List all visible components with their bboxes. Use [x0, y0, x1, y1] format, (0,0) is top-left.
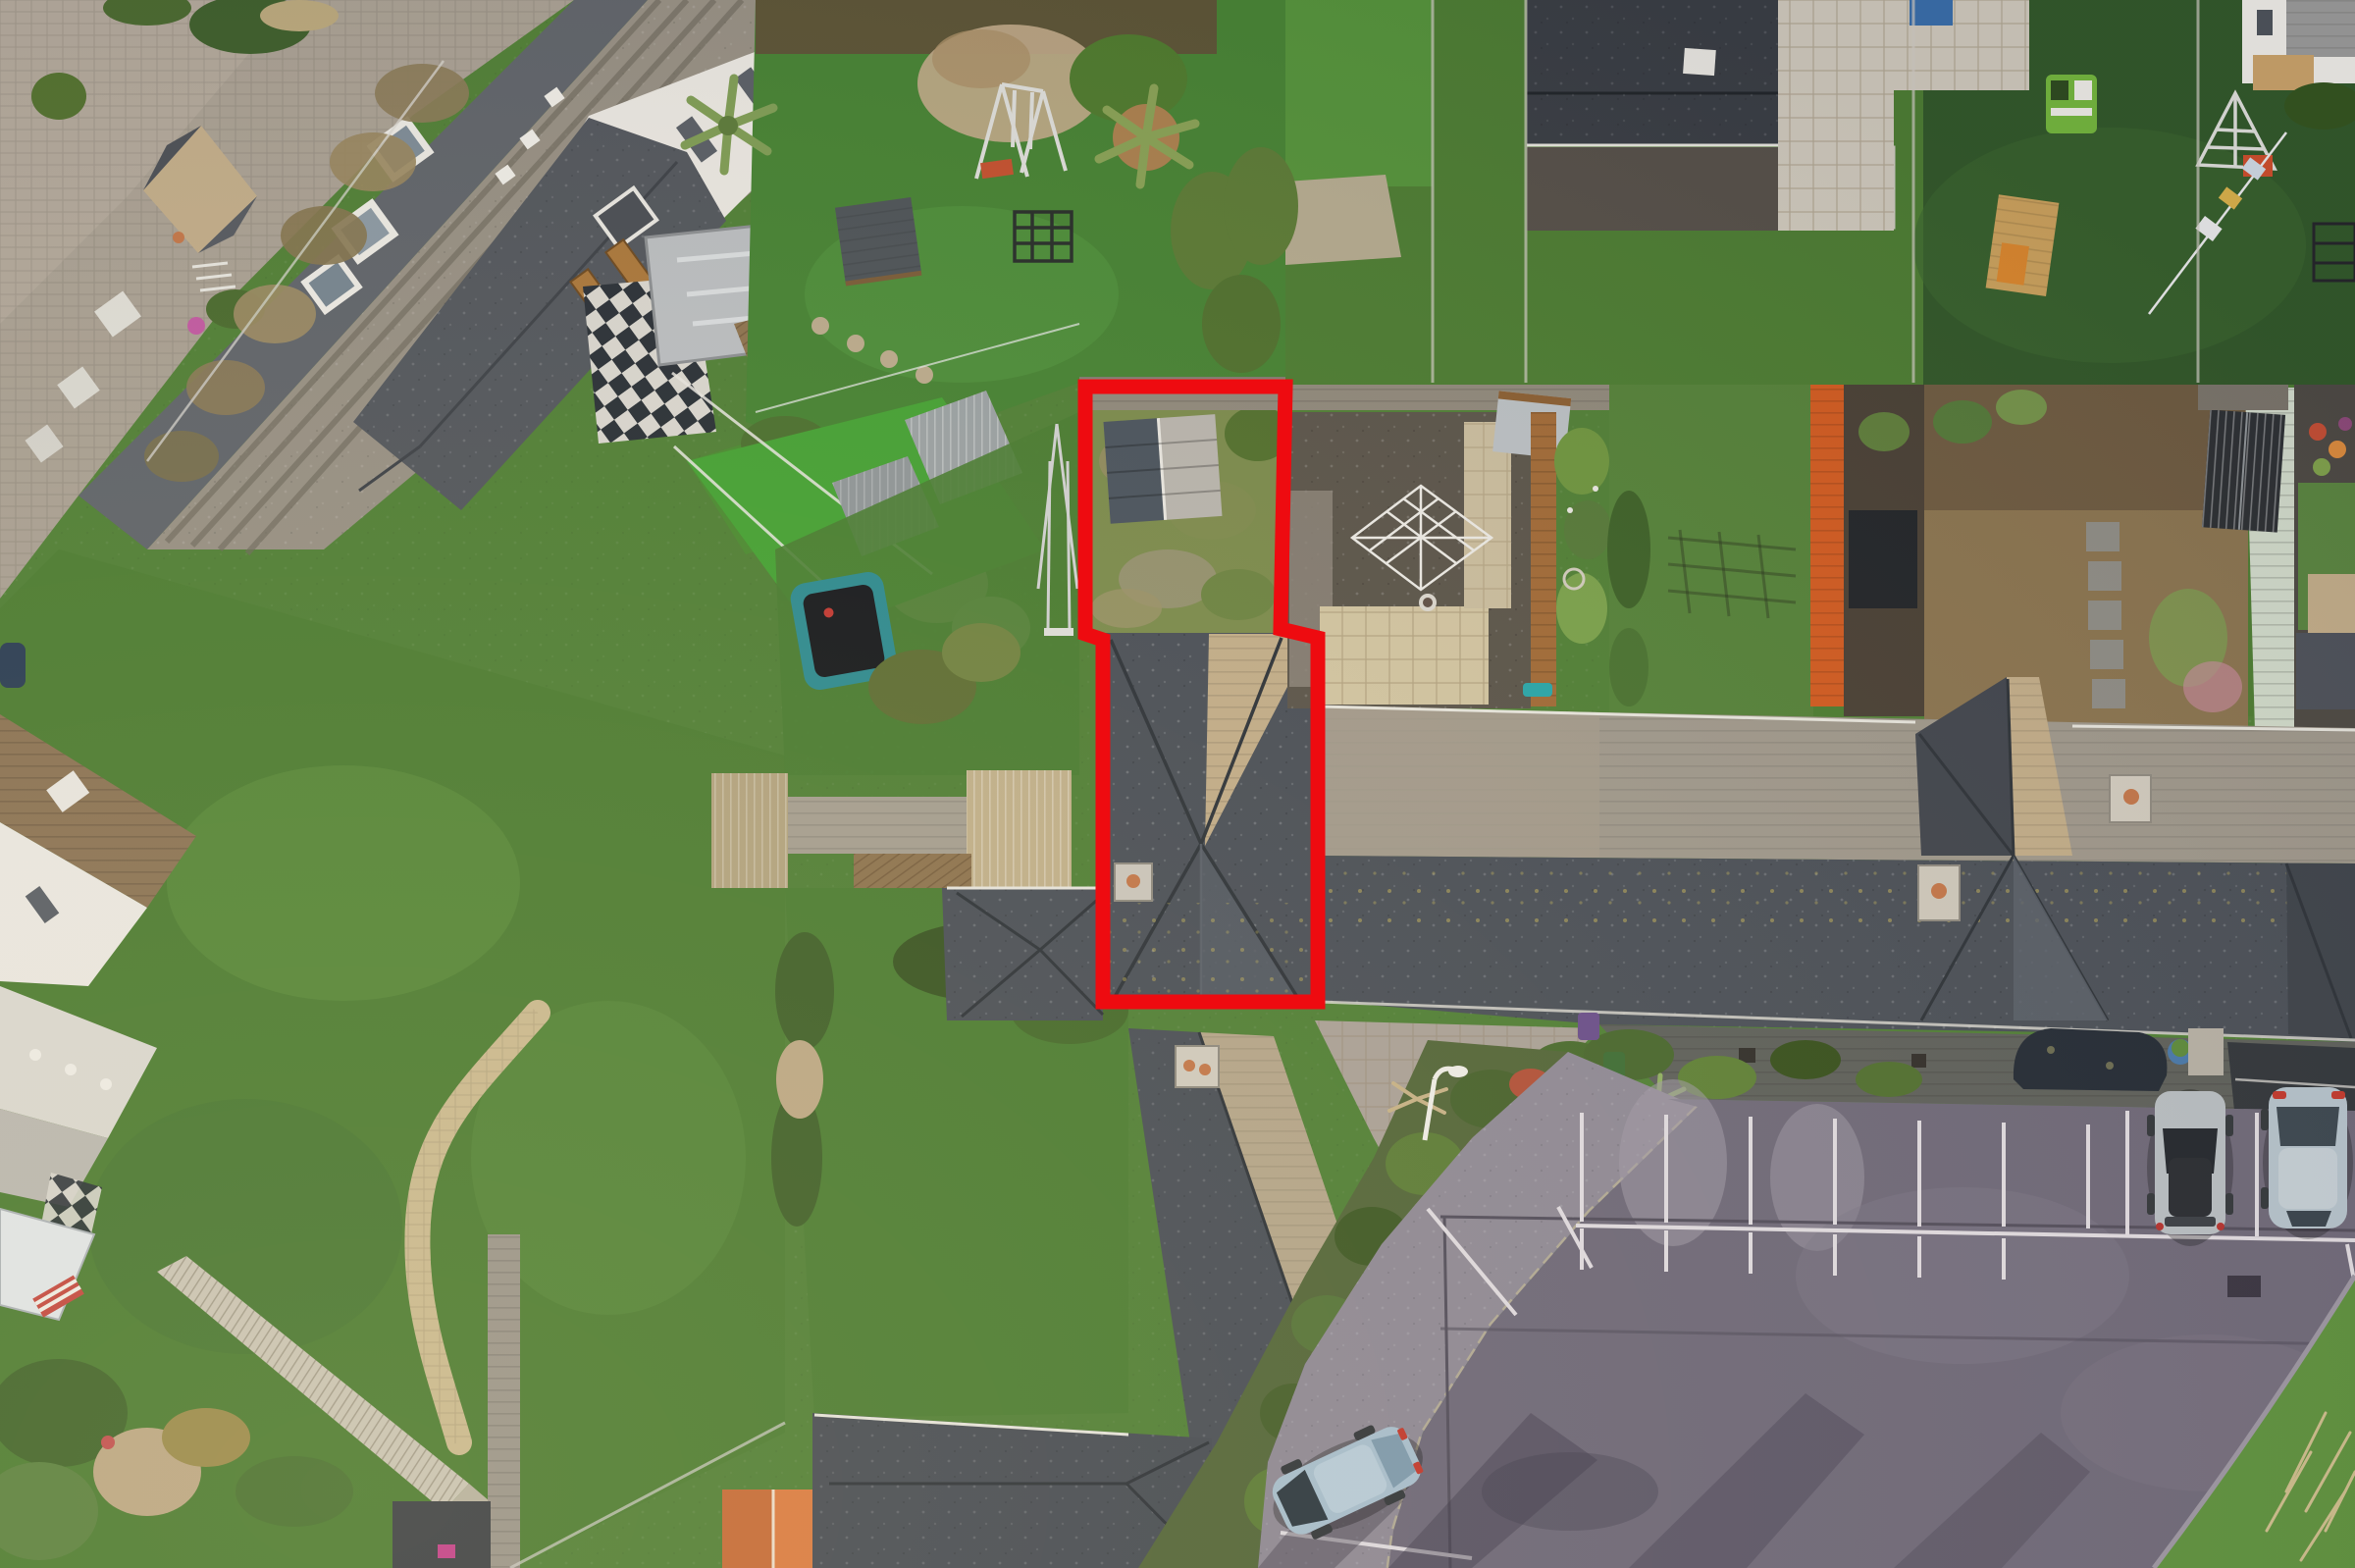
aerial-photo — [0, 0, 2355, 1568]
light-wash — [0, 0, 2355, 1568]
aerial-photo-canvas — [0, 0, 2355, 1568]
